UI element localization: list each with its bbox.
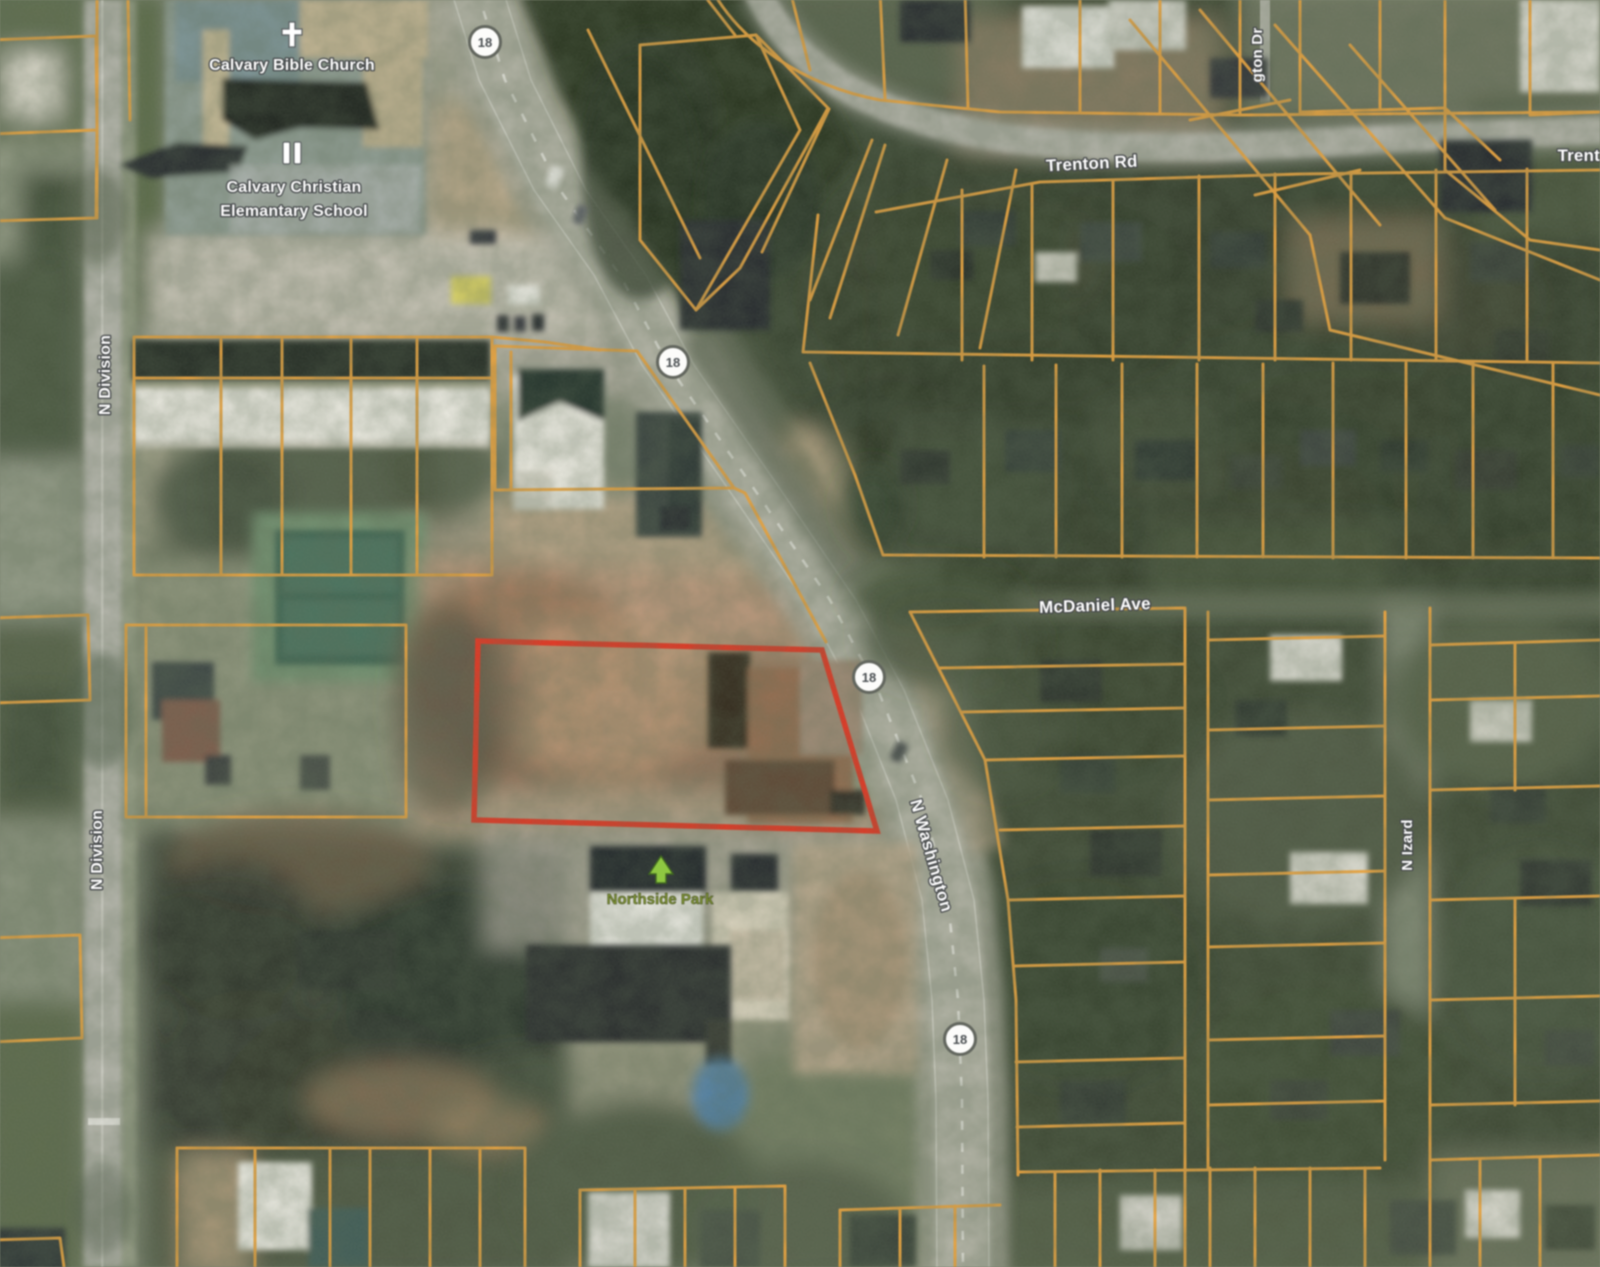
- svg-text:18: 18: [862, 670, 876, 685]
- svg-text:Calvary Christian: Calvary Christian: [226, 179, 361, 196]
- svg-text:18: 18: [953, 1032, 967, 1047]
- svg-text:Elemantary School: Elemantary School: [220, 203, 367, 220]
- svg-text:N Division: N Division: [89, 810, 106, 890]
- svg-text:N Division: N Division: [97, 335, 114, 415]
- svg-text:Northside Park: Northside Park: [607, 891, 714, 908]
- svg-text:gton Dr: gton Dr: [1249, 28, 1266, 83]
- svg-text:Trent: Trent: [1557, 146, 1600, 165]
- svg-text:N Izard: N Izard: [1399, 819, 1416, 870]
- svg-text:18: 18: [666, 355, 680, 370]
- svg-text:Calvary Bible Church: Calvary Bible Church: [209, 57, 375, 74]
- svg-text:18: 18: [478, 35, 492, 50]
- svg-text:McDaniel Ave: McDaniel Ave: [1039, 594, 1151, 617]
